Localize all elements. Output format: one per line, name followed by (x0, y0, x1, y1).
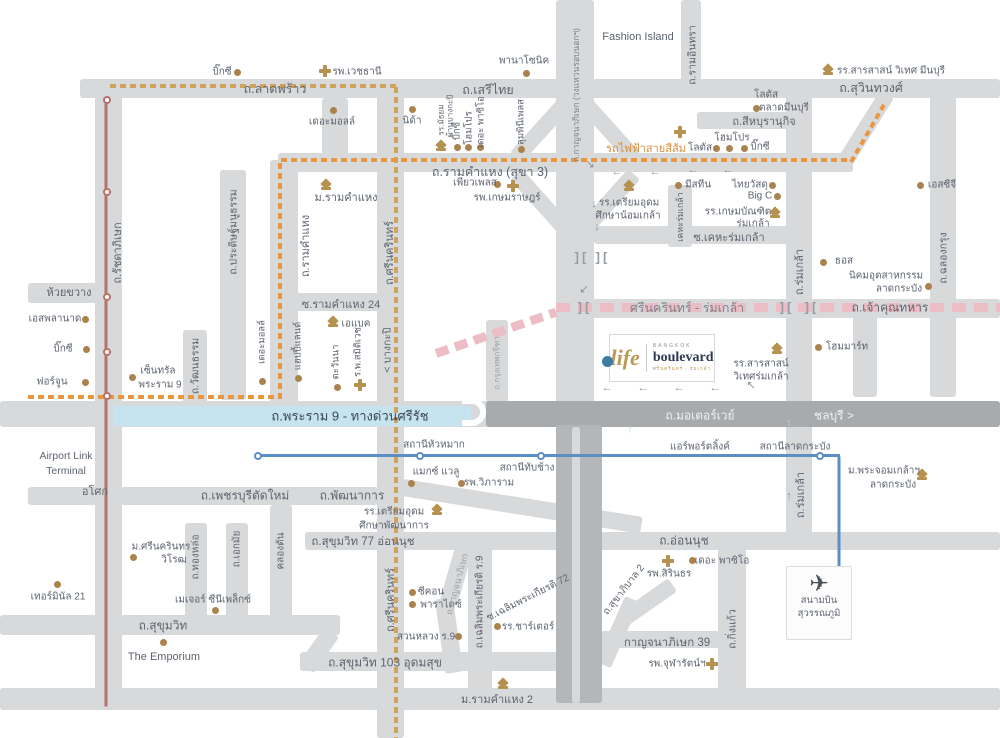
transit-line-dashed (28, 395, 280, 399)
map-label: ถ.สุขุมวิท 77 อ่อนนุช (311, 533, 414, 551)
map-label: ชลบุรี > (814, 407, 854, 426)
map-label: สถานีหัวหมาก (403, 438, 465, 453)
transit-line-dashed (278, 163, 282, 400)
poi-dot-icon (334, 384, 341, 391)
poi-dot-icon (917, 182, 924, 189)
map-label: กาญจนาภิเษก 39 (624, 634, 710, 652)
bridge-mark-icon: ][ (596, 250, 611, 265)
map-label: วิโรฒ (161, 553, 186, 568)
direction-arrow-icon: ← (688, 164, 699, 176)
direction-arrow-icon: ↘ (585, 158, 594, 171)
map-label: บิ๊กซี (53, 342, 72, 357)
map-label: ถ.เฉลิมพระเกียรติ ร.9 (473, 556, 488, 649)
map-label: ซ.เคหะร่มเกล้า (693, 228, 764, 246)
school-cap-icon (435, 141, 447, 152)
hospital-cross-icon (319, 65, 331, 77)
map-label: ลุมพินีเพลส (514, 99, 529, 145)
school-cap-icon (497, 679, 509, 690)
map-label: แฮปปี้แลนด์ (291, 322, 306, 371)
direction-arrow-icon: ↑ (786, 417, 792, 429)
direction-arrow-icon: ← (674, 382, 685, 394)
transit-line (838, 457, 841, 584)
map-label: ม.รามคำแหง (315, 188, 378, 206)
poi-dot-icon (330, 107, 337, 114)
road (278, 153, 853, 172)
map-label: ถ.กิ่งแก้ว (724, 609, 741, 649)
map-label: โฮมโปร (714, 131, 749, 146)
map-label: Big C (748, 191, 772, 202)
map-label: รร.สารสาสน์ วิเทศ มีนบุรี (837, 64, 945, 79)
map-label: สถานีทับช้าง (500, 461, 555, 476)
poi-dot-icon (820, 259, 827, 266)
poi-dot-icon (409, 589, 416, 596)
map-label: บิ๊กซี (212, 65, 231, 80)
map-label: รพ.เวชธานี (332, 65, 381, 80)
transit-line-dashed (556, 303, 1000, 312)
map-label: คลองตัน (274, 532, 289, 569)
poi-dot-icon (129, 374, 136, 381)
poi-dot-icon (295, 375, 302, 382)
map-label: The Emporium (128, 651, 200, 663)
poi-dot-icon (741, 145, 748, 152)
direction-arrow-icon: ↙ (579, 283, 588, 296)
poi-dot-icon (454, 144, 461, 151)
school-cap-icon (822, 65, 834, 76)
map-label: โลตัส (688, 141, 712, 156)
map-label: ถ.มอเตอร์เวย์ (665, 407, 734, 426)
school-cap-icon (771, 344, 783, 355)
map-label: ศึกษาพัฒนาการ (359, 519, 429, 534)
map-label: ถ.ประดิษฐ์มนูธรรม (225, 189, 242, 274)
map-label: บิ๊กซี (750, 140, 769, 155)
map-label: รร.เตรียมอุดม (364, 505, 424, 520)
logo-text-column: BANGKOK boulevard ศรีนครินทร์ - ร่มเกล้า (653, 344, 714, 371)
map-label: ถ.รามอินทรา (684, 25, 701, 85)
map-label: ถ.กรุงเทพกรีฑา (491, 336, 504, 390)
map-label: เดอะมอลล์ (309, 115, 355, 130)
poi-dot-icon (523, 70, 530, 77)
map-label: โฮมมาร์ท (826, 340, 868, 355)
map-label: เมเจอร์ ซีนีเพล็กซ์ (175, 593, 251, 608)
map-label: ถ.เพชรบุรีตัดใหม่ (201, 487, 290, 506)
poi-dot-icon (455, 633, 462, 640)
map-label: เพียวเพลส (453, 176, 497, 191)
poi-dot-icon (259, 378, 266, 385)
map-label: Terminal (46, 465, 86, 477)
map-label: ร.พ.สมิติเวช (351, 327, 366, 377)
map-label: ถ.สุขุมวิท 103 อุดมสุข (328, 654, 442, 673)
map-label: รพ.จุฬารัตน์ฯ (648, 657, 705, 672)
map-label: ถ.ศรีนครินทร์ (381, 568, 399, 632)
bridge-mark-icon: ][ (578, 300, 593, 315)
direction-arrow-icon: ← (650, 166, 661, 178)
direction-arrow-icon: ↑ (627, 423, 633, 435)
map-label: สถานีลาดกระบัง (760, 440, 831, 455)
poi-dot-icon (408, 480, 415, 487)
map-label: ห้วยขวาง (46, 283, 91, 301)
map-label: สวนหลวง ร.9 (397, 630, 455, 645)
airport-name-line2: สุวรรณภูมิ (798, 608, 841, 621)
poi-dot-icon (82, 316, 89, 323)
map-label: นิด้า (403, 114, 422, 129)
map-label: ถ.สุวินทวงศ์ (839, 78, 903, 98)
poi-dot-icon (925, 283, 932, 290)
poi-dot-icon (54, 581, 61, 588)
transit-line (258, 454, 840, 457)
map-label: รพ.วิภาราม (464, 476, 514, 491)
map-label: ถ.เจ้าคุณทหาร (852, 299, 929, 318)
school-cap-icon (431, 505, 443, 516)
map-label: อโศก (82, 482, 108, 500)
poi-dot-icon (234, 69, 241, 76)
road (572, 427, 580, 703)
poi-dot-icon (726, 145, 733, 152)
hospital-cross-icon (706, 658, 718, 670)
poi-dot-icon (518, 146, 525, 153)
poi-dot-icon (212, 607, 219, 614)
suvarnabhumi-airport-box: ✈ สนามบิน สุวรรณภูมิ (786, 566, 852, 640)
station-circle-icon (103, 188, 111, 196)
map-label: ถ.ฉลองกรุง (935, 232, 952, 283)
map-label: ฟอร์จูน (36, 375, 67, 390)
map-label: ตะวันนา (329, 345, 344, 380)
hospital-cross-icon (354, 379, 366, 391)
station-circle-icon (254, 452, 262, 460)
direction-arrow-icon: ← (612, 166, 623, 178)
map-label: Airport Link (39, 450, 92, 462)
airplane-icon: ✈ (809, 572, 828, 595)
map-label: แมกซ์ แวลู (413, 465, 460, 480)
map-label: รถไฟฟ้าสายสีส้ม (606, 139, 686, 157)
bridge-mark-icon: ][ (575, 250, 590, 265)
map-label: ถ.ศรีนครินทร์ (380, 221, 398, 285)
map-label: เดอะ พาซิโอ (474, 96, 489, 148)
map-label: ลาดกระบัง (876, 282, 922, 297)
logo-name-text: boulevard (653, 350, 714, 366)
map-label: ม.รามคำแหง 2 (461, 690, 533, 708)
map-label: พระราม 9 (138, 378, 181, 393)
map-label: ซ.รามคำแหง 24 (302, 295, 380, 313)
school-cap-icon (623, 181, 635, 192)
map-label: เทอร์มินัล 21 (31, 590, 86, 605)
map-label: Fashion Island (602, 31, 674, 43)
map-label: ศรีนครินทร์ - ร่มเกล้า (630, 298, 744, 318)
map-label: ม.พระจอมเกล้าฯ (848, 464, 920, 479)
map-label: มีสทีน (685, 178, 711, 193)
map-label: ถ.พระราม 9 - ทางด่วนศรีรัช (271, 406, 428, 427)
poi-dot-icon (160, 639, 167, 646)
map-label: ศึกษาน้อมเกล้า (595, 209, 660, 224)
hospital-cross-icon (662, 555, 674, 567)
direction-arrow-icon: ← (710, 382, 721, 394)
direction-arrow-icon: ← (602, 382, 613, 394)
airport-name-line1: สนามบิน (801, 595, 837, 608)
station-circle-icon (103, 96, 111, 104)
map-label: ถ.ร่มเกล้า (790, 249, 808, 295)
map-label: รร.ชาร์เตอร์ (502, 620, 555, 635)
map-label: < บางกะปิ (379, 327, 396, 372)
map-label: ถ.เอกมัย (230, 531, 245, 568)
map-label: ถ.รามคำแหง (296, 215, 314, 277)
station-circle-icon (103, 293, 111, 301)
map-label: แอร์พอร์ตลิ้งค์ (670, 440, 730, 455)
poi-dot-icon (83, 346, 90, 353)
project-marker (602, 356, 613, 367)
poi-dot-icon (130, 554, 137, 561)
logo-script-text: life (610, 345, 639, 371)
map-label: รพ.เกษมราษฎร์ (473, 191, 540, 206)
map-label: ถ.อ่อนนุช (659, 532, 709, 551)
map-label: ถ.กาญจนาภิเษก (วงแหวนรอบนอกฯ) (569, 28, 583, 162)
bridge-mark-icon: ][ (805, 300, 820, 315)
map-label: ถ.วัฒนธรรม (187, 338, 204, 394)
map-label: ธอส (835, 254, 853, 269)
poi-dot-icon (815, 344, 822, 351)
map-label: ถ.สุขุมวิท (139, 617, 188, 636)
hospital-cross-icon (674, 126, 686, 138)
poi-dot-icon (494, 623, 501, 630)
bridge-mark-icon: ][ (780, 300, 795, 315)
station-circle-icon (103, 392, 111, 400)
map-label: พานาโซนิค (499, 54, 549, 69)
map-label: วิเทศร่มเกล้า (733, 370, 788, 385)
map-label: ถ.พัฒนาการ (320, 487, 385, 506)
map-label: ถ.สีหบุรานุกิจ (732, 112, 795, 130)
map-label: เดอะ พาซิโอ (695, 554, 749, 569)
map-label: ถ.ร่มเกล้า (791, 472, 809, 518)
logo-divider (646, 344, 647, 372)
map-label: ถ.รัชดาภิเษก (108, 222, 126, 283)
station-circle-icon (103, 348, 111, 356)
poi-dot-icon (713, 145, 720, 152)
poi-dot-icon (769, 182, 776, 189)
station-circle-icon (537, 452, 545, 460)
transit-line-dashed (281, 158, 851, 162)
map-label: เดอะมอลล์ (255, 320, 270, 364)
project-logo: life BANGKOK boulevard ศรีนครินทร์ - ร่ม… (609, 334, 715, 382)
poi-dot-icon (409, 106, 416, 113)
poi-dot-icon (675, 182, 682, 189)
logo-subtitle-text: ศรีนครินทร์ - ร่มเกล้า (653, 366, 714, 371)
location-map: life BANGKOK boulevard ศรีนครินทร์ - ร่ม… (0, 0, 1000, 738)
station-circle-icon (416, 452, 424, 460)
map-label: เอสพลานาด (29, 312, 82, 327)
poi-dot-icon (82, 379, 89, 386)
direction-arrow-icon: ← (638, 382, 649, 394)
road (853, 315, 877, 397)
map-label: เอสซีจี (928, 178, 956, 193)
map-label: ถ.ทองหล่อ (189, 534, 204, 579)
school-cap-icon (327, 317, 339, 328)
poi-dot-icon (409, 601, 416, 608)
map-label: เคหะร่มเกล้า (673, 192, 687, 242)
map-label: รพ.สิรินธร (647, 567, 692, 582)
map-label: เซ็นทรัล (140, 364, 175, 379)
road (486, 401, 1000, 427)
direction-arrow-icon: ← (723, 164, 734, 176)
map-label: ลาดกระบัง (870, 478, 916, 493)
poi-dot-icon (774, 193, 781, 200)
map-label: ถ.ลาดพร้าว (244, 79, 307, 99)
